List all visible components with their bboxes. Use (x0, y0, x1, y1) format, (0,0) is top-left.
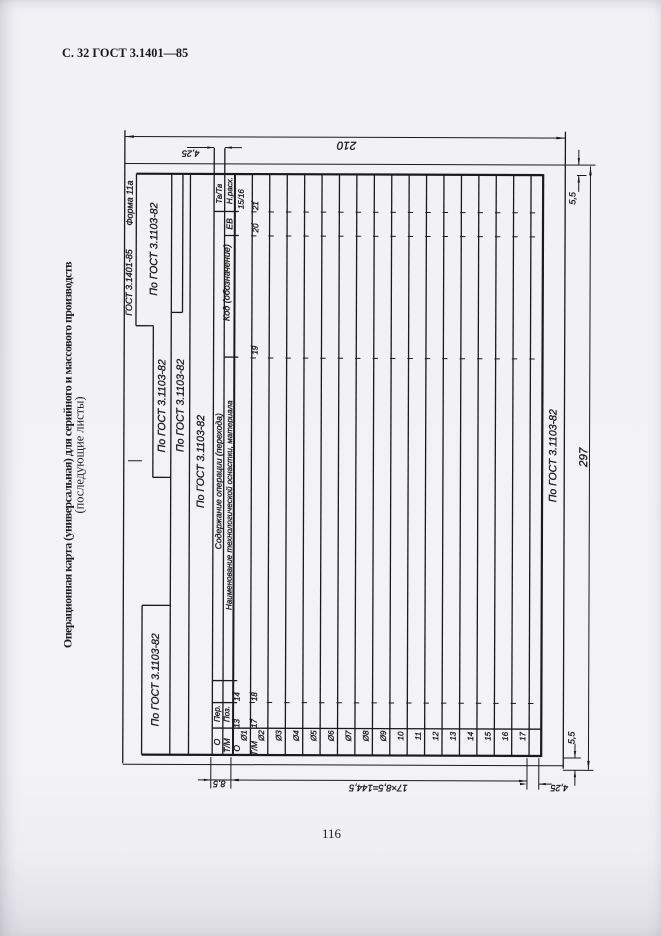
svg-text:По ГОСТ 3.1103-82: По ГОСТ 3.1103-82 (195, 415, 207, 508)
svg-text:Наименование технологической: Наименование технологической оснастки, м… (225, 400, 235, 610)
svg-text:8,5: 8,5 (212, 779, 226, 789)
svg-text:21: 21 (251, 201, 260, 211)
svg-text:По ГОСТ 3.1103-82: По ГОСТ 3.1103-82 (547, 409, 559, 502)
svg-text:ЕВ: ЕВ (224, 218, 234, 230)
svg-text:Ø4: Ø4 (292, 730, 301, 742)
svg-text:11: 11 (414, 732, 423, 740)
svg-text:Пер.: Пер. (213, 705, 222, 722)
svg-text:15: 15 (484, 731, 493, 740)
svg-text:По ГОСТ 3.1103-82: По ГОСТ 3.1103-82 (175, 359, 187, 452)
svg-text:14: 14 (466, 731, 475, 740)
svg-text:О: О (212, 738, 222, 745)
svg-text:5,5: 5,5 (567, 191, 577, 205)
svg-text:12: 12 (431, 731, 440, 740)
svg-text:Т/М: Т/М (249, 740, 259, 756)
svg-text:Н.расх.: Н.расх. (225, 177, 234, 204)
svg-text:Ø8: Ø8 (362, 730, 371, 742)
svg-text:210: 210 (336, 139, 357, 151)
svg-text:17×8,5=144,5: 17×8,5=144,5 (348, 782, 407, 793)
svg-text:Ø9: Ø9 (379, 730, 388, 742)
svg-text:10: 10 (396, 731, 405, 740)
svg-text:Ø2: Ø2 (257, 730, 266, 742)
svg-text:4,25: 4,25 (550, 783, 569, 793)
svg-text:Ø3: Ø3 (274, 730, 283, 742)
svg-text:Ø6: Ø6 (327, 730, 336, 742)
svg-text:Форма 11а: Форма 11а (125, 180, 135, 225)
svg-text:16: 16 (501, 731, 510, 740)
svg-text:4,25: 4,25 (181, 148, 200, 158)
svg-text:Тв/Тв: Тв/Тв (215, 184, 224, 204)
svg-text:Поз.: Поз. (222, 706, 231, 722)
svg-text:15/16: 15/16 (237, 189, 246, 210)
svg-text:Ø1: Ø1 (240, 730, 249, 742)
svg-text:5,5: 5,5 (566, 731, 576, 745)
svg-text:По ГОСТ 3.1103-82: По ГОСТ 3.1103-82 (148, 202, 160, 295)
svg-text:О: О (232, 745, 242, 752)
svg-text:17: 17 (518, 731, 527, 740)
svg-text:297: 297 (578, 447, 590, 468)
svg-text:Содержание операции (переход: Содержание операции (перехода) (213, 413, 223, 549)
svg-text:ГОСТ 3.1401-85: ГОСТ 3.1401-85 (124, 248, 134, 315)
svg-text:По ГОСТ 3.1103-82: По ГОСТ 3.1103-82 (156, 359, 168, 452)
svg-text:Код (обозначение): Код (обозначение) (221, 244, 231, 321)
svg-text:По ГОСТ 3.1103-82: По ГОСТ 3.1103-82 (150, 633, 162, 726)
svg-text:13: 13 (449, 731, 458, 740)
svg-text:Ø7: Ø7 (344, 730, 353, 742)
svg-text:Т/М: Т/М (222, 737, 232, 753)
svg-text:Ø5: Ø5 (309, 730, 318, 742)
